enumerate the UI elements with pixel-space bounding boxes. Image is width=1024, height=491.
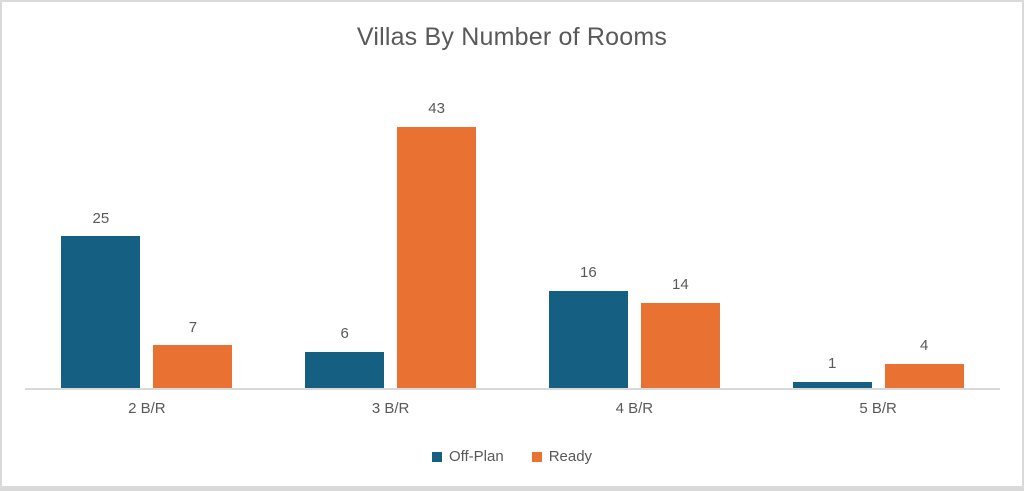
legend-label-offplan: Off-Plan xyxy=(449,448,504,465)
x-axis-labels: 2 B/R3 B/R4 B/R5 B/R xyxy=(25,400,1000,417)
value-label: 43 xyxy=(428,101,445,118)
bar-with-label: 7 xyxy=(153,320,232,388)
value-label: 25 xyxy=(93,211,110,228)
bar-group: 643 xyxy=(269,2,513,388)
bar-with-label: 14 xyxy=(641,277,720,388)
bar-with-label: 6 xyxy=(305,326,384,388)
plot-area: 257643161414 xyxy=(25,2,1000,388)
legend-swatch-ready-icon xyxy=(532,452,542,462)
bar-group: 14 xyxy=(756,2,1000,388)
category-label: 2 B/R xyxy=(25,400,269,417)
bar-ready xyxy=(641,303,720,388)
legend-item-ready: Ready xyxy=(532,448,592,465)
bar-with-label: 4 xyxy=(885,338,964,388)
bar-with-label: 16 xyxy=(549,265,628,388)
legend-label-ready: Ready xyxy=(549,448,592,465)
bar-off-plan xyxy=(305,352,384,388)
bar-with-label: 25 xyxy=(61,211,140,389)
bar-ready xyxy=(885,364,964,388)
bar-off-plan xyxy=(61,236,140,388)
bar-group: 257 xyxy=(25,2,269,388)
bar-with-label: 43 xyxy=(397,101,476,388)
value-label: 7 xyxy=(189,320,197,337)
value-label: 4 xyxy=(920,338,928,355)
legend-item-offplan: Off-Plan xyxy=(432,448,504,465)
x-axis-line xyxy=(25,388,1000,390)
bar-ready xyxy=(397,127,476,388)
legend: Off-Plan Ready xyxy=(2,448,1022,465)
bar-off-plan xyxy=(549,291,628,388)
bar-with-label: 1 xyxy=(793,356,872,388)
value-label: 16 xyxy=(580,265,597,282)
category-label: 3 B/R xyxy=(269,400,513,417)
bar-ready xyxy=(153,345,232,388)
category-label: 5 B/R xyxy=(756,400,1000,417)
value-label: 1 xyxy=(828,356,836,373)
category-label: 4 B/R xyxy=(513,400,757,417)
chart-area: Villas By Number of Rooms 257643161414 2… xyxy=(2,2,1022,486)
value-label: 14 xyxy=(672,277,689,294)
legend-swatch-offplan-icon xyxy=(432,452,442,462)
bar-group: 1614 xyxy=(513,2,757,388)
value-label: 6 xyxy=(340,326,348,343)
